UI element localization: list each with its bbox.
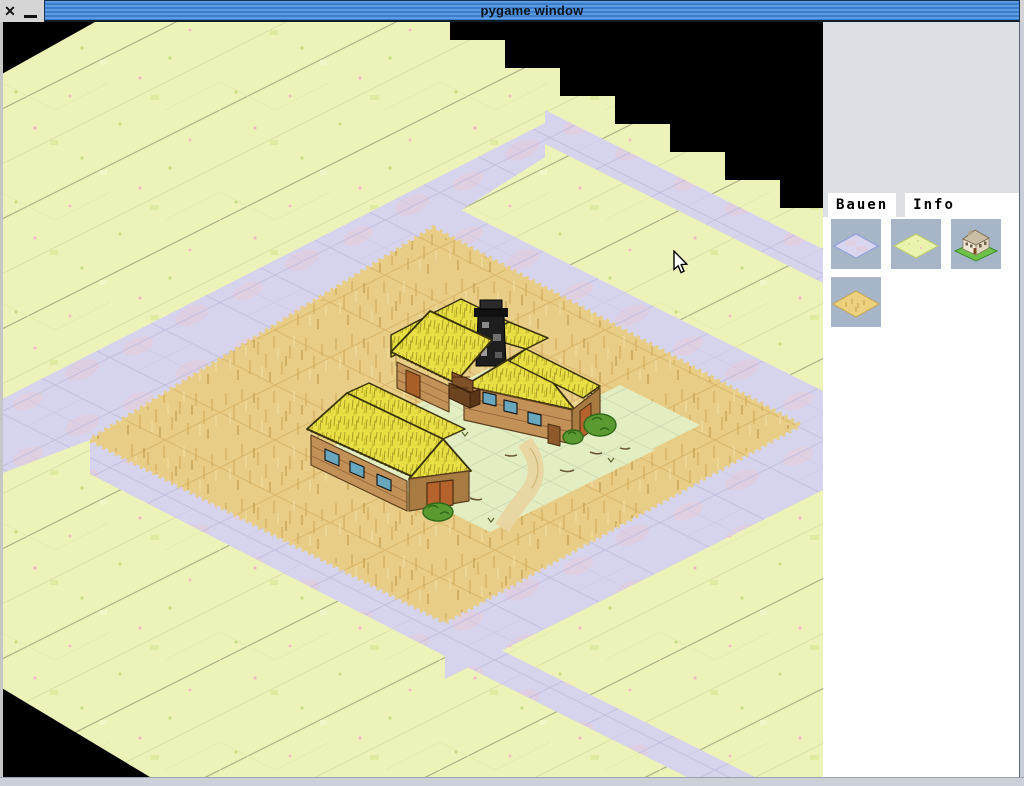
grass-tile-icon xyxy=(891,219,941,269)
window xyxy=(504,400,517,414)
road-tile-icon xyxy=(831,219,881,269)
palette-grass-tile-button[interactable] xyxy=(891,219,941,269)
window-border-right xyxy=(1019,22,1024,777)
field-tile-icon xyxy=(831,277,881,327)
titlebar: ✕ pygame window xyxy=(0,0,1024,22)
tab-info[interactable]: Info xyxy=(905,193,963,217)
palette-house-button[interactable] xyxy=(951,219,1001,269)
build-palette xyxy=(823,217,1019,335)
window xyxy=(528,412,541,426)
titlebar-drag-area[interactable]: pygame window xyxy=(44,0,1020,22)
close-icon[interactable]: ✕ xyxy=(0,1,20,21)
game-canvas[interactable] xyxy=(3,22,823,777)
minimize-icon[interactable] xyxy=(20,1,40,21)
palette-field-tile-button[interactable] xyxy=(831,277,881,327)
tab-bauen[interactable]: Bauen xyxy=(828,193,896,217)
panel-top-area xyxy=(823,22,1019,193)
window xyxy=(483,392,496,406)
tab-bar: Bauen Info xyxy=(823,193,1019,217)
window-title: pygame window xyxy=(480,3,583,18)
door xyxy=(548,424,560,446)
window-border-left xyxy=(0,22,3,777)
side-panel: Bauen Info xyxy=(823,22,1019,777)
house-icon xyxy=(951,219,1001,269)
palette-road-tile-button[interactable] xyxy=(831,219,881,269)
